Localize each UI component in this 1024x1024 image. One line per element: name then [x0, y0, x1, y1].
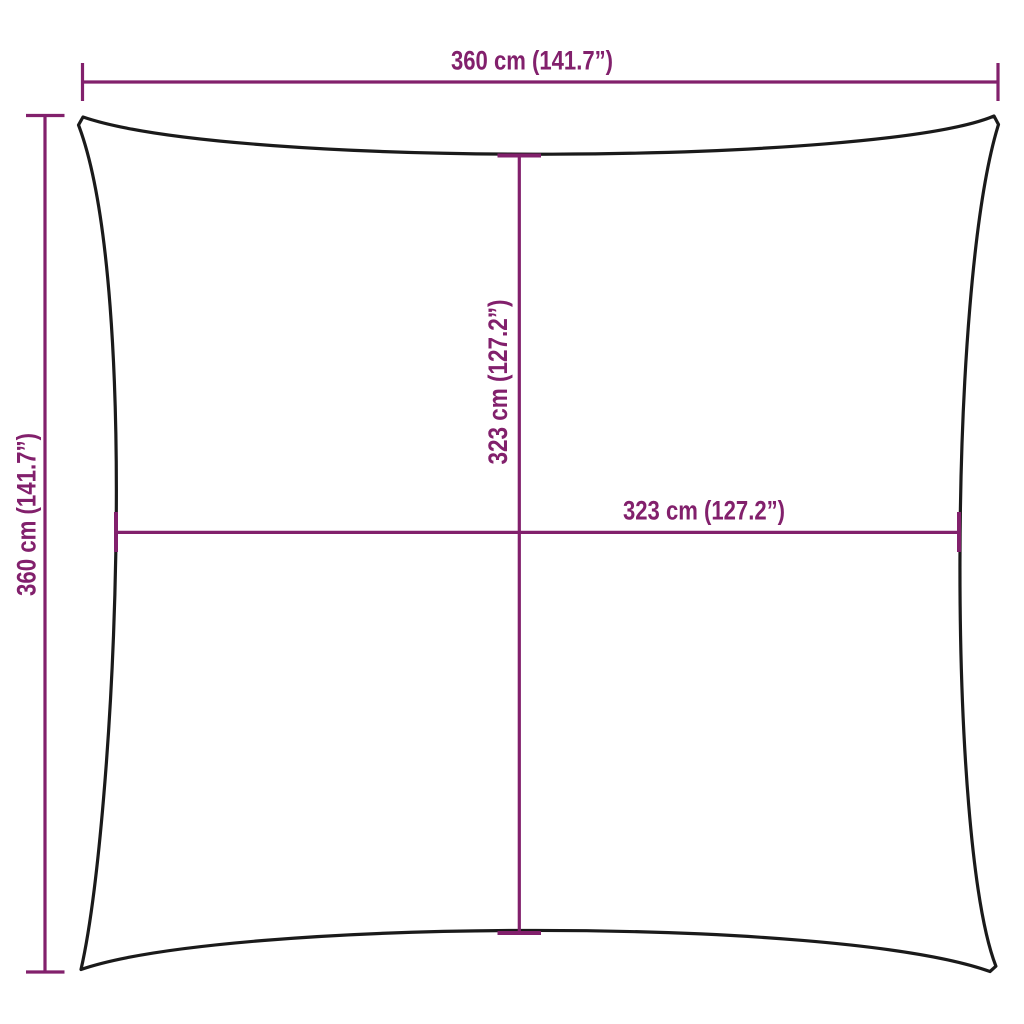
svg-text:323 cm (127.2”): 323 cm (127.2”): [483, 300, 513, 465]
svg-text:360 cm (141.7”): 360 cm (141.7”): [12, 433, 42, 596]
svg-text:360 cm (141.7”): 360 cm (141.7”): [451, 46, 613, 76]
svg-text:323 cm (127.2”): 323 cm (127.2”): [623, 496, 785, 526]
